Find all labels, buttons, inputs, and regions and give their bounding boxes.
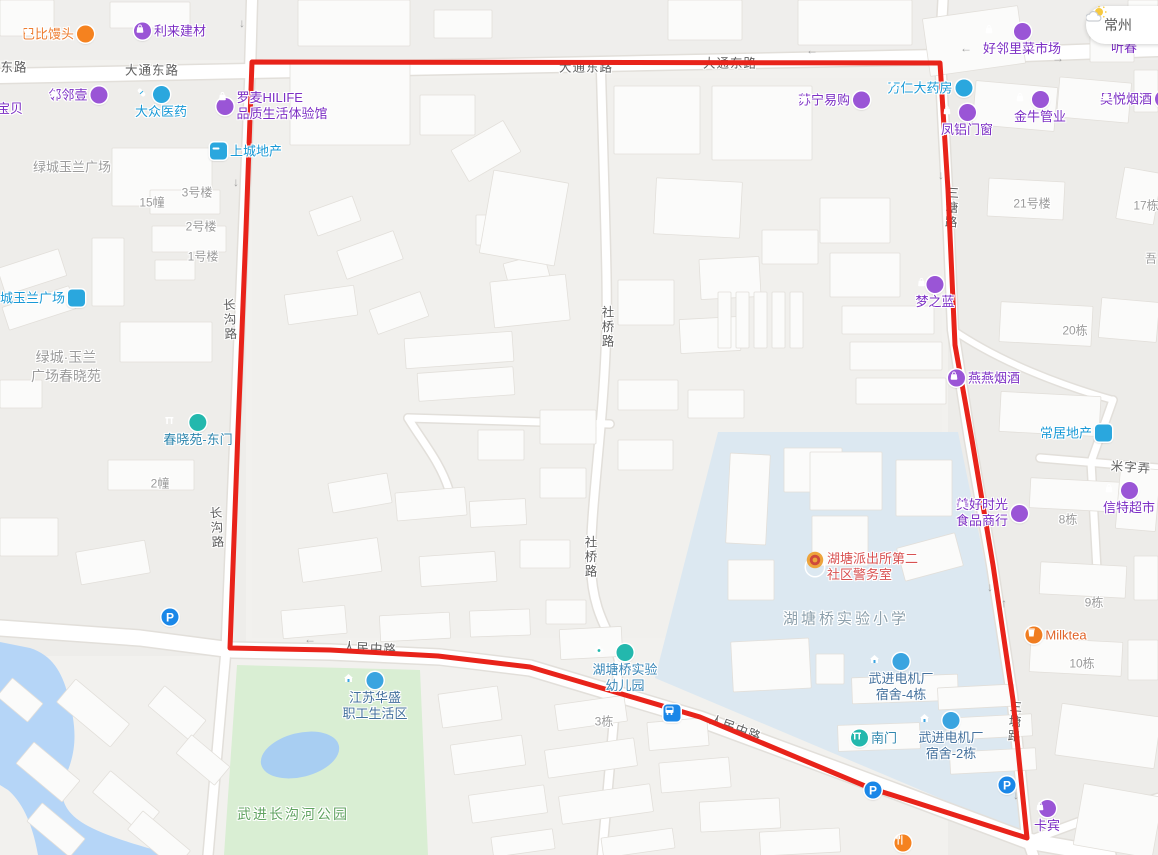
cup-icon xyxy=(1025,627,1042,644)
poi-label: 凤铝门窗 xyxy=(941,122,993,138)
bag-icon xyxy=(926,276,943,293)
poi-label-line: 宝贝 xyxy=(0,101,23,117)
bag-icon xyxy=(134,23,151,40)
map-canvas[interactable]: ↓↓←←→↓↓↑↓← 东路大通东路大通东路大通东路人民中路人民中路米字弄社桥路社… xyxy=(0,0,1158,855)
poi-label-line: 燕燕烟酒 xyxy=(968,370,1020,386)
house-icon xyxy=(366,672,383,689)
poi-label-line: 湖塘桥实验 xyxy=(592,662,657,678)
poi-label-line: 绿城玉兰广场 xyxy=(0,290,65,306)
poi-label-line: 上城地产 xyxy=(230,143,282,159)
poi-label-line: 湖塘派出所第二 xyxy=(827,551,918,567)
gate-icon xyxy=(851,730,868,747)
poi-shangcheng-estate[interactable]: 上城地产 xyxy=(210,143,282,160)
P-icon: P xyxy=(865,782,882,799)
poi-label-line: 幼儿园 xyxy=(592,678,657,694)
poi-label-line: 宿舍-4栋 xyxy=(868,687,933,703)
house-icon xyxy=(942,712,959,729)
house-icon xyxy=(892,653,909,670)
poi-label: 湖塘桥实验幼儿园 xyxy=(592,662,657,694)
poi-dazhong-pharmacy[interactable]: 大众医药 xyxy=(135,86,187,120)
bag-icon xyxy=(1011,505,1028,522)
poi-jiangsu-huasheng[interactable]: 江苏华盛职工生活区 xyxy=(342,672,407,722)
poi-label-line: 江苏华盛 xyxy=(342,690,407,706)
dash-icon xyxy=(1095,425,1112,442)
poi-experimental-kindergarten[interactable]: 湖塘桥实验幼儿园 xyxy=(592,644,657,694)
capsule-icon xyxy=(956,80,973,97)
bag-icon xyxy=(958,104,975,121)
poi-label-line: 职工生活区 xyxy=(342,706,407,722)
bag-icon xyxy=(1038,800,1055,817)
poi-label-line: 卡宾 xyxy=(1034,818,1060,834)
poi-label: 宝贝 xyxy=(0,101,23,117)
bag-icon xyxy=(1120,482,1137,499)
poi-yanyan-tobacco[interactable]: 燕燕烟酒 xyxy=(948,370,1020,387)
poi-wanren-pharmacy[interactable]: 万仁大药房 xyxy=(887,80,972,97)
badge-icon xyxy=(806,558,824,576)
poi-label-line: 武进电机厂 xyxy=(868,671,933,687)
flower-icon xyxy=(616,644,633,661)
poi-label: 绿城玉兰广场 xyxy=(0,290,65,306)
poi-label-line: 宿舍-2栋 xyxy=(918,746,983,762)
capsule-icon xyxy=(152,86,169,103)
bag-icon xyxy=(216,98,233,115)
poi-fenglv-windows[interactable]: 凤铝门窗 xyxy=(941,104,993,138)
poi-haolinli-market[interactable]: 好邻里菜市场 xyxy=(983,23,1061,57)
poi-label-line: 信特超市 xyxy=(1103,500,1155,516)
gate-icon xyxy=(190,414,207,431)
poi-label: 上城地产 xyxy=(230,143,282,159)
poi-changju-estate[interactable]: 常居地产 xyxy=(1040,425,1112,442)
bus-icon xyxy=(664,705,681,722)
poi-label-line: 品质生活体验馆 xyxy=(236,106,327,122)
poi-label-line: 金牛管业 xyxy=(1014,109,1066,125)
poi-chunxiao-east-gate[interactable]: 春晓苑-东门 xyxy=(163,414,232,448)
dash-icon xyxy=(210,143,227,160)
poi-lilai-jiancai[interactable]: 利来建材 xyxy=(134,23,206,40)
poi-label: 江苏华盛职工生活区 xyxy=(342,690,407,722)
fork-icon xyxy=(895,835,912,852)
poi-mengzhilan[interactable]: 梦之蓝 xyxy=(915,276,954,310)
poi-label-line: 南门 xyxy=(871,730,897,746)
weather-city: 常州 xyxy=(1104,15,1132,35)
poi-xinte-supermarket[interactable]: 信特超市 xyxy=(1103,482,1155,516)
poi-label-line: 凤铝门窗 xyxy=(941,122,993,138)
poi-baobei[interactable]: 宝贝 xyxy=(0,101,23,117)
poi-label-line: 社区警务室 xyxy=(827,567,918,583)
poi-label-line: 罗麦HILIFE xyxy=(236,90,327,106)
poi-layer: 巴比馒头利来建材邻邻壹宝贝大众医药罗麦HILIFE品质生活体验馆上城地产绿城玉兰… xyxy=(0,0,1158,855)
poi-label-line: 武进电机厂 xyxy=(918,730,983,746)
poi-bus-stop[interactable] xyxy=(664,705,681,722)
poi-suning-store[interactable]: 苏宁易购 xyxy=(798,92,870,109)
poi-label: 金牛管业 xyxy=(1014,109,1066,125)
poi-linlinyi[interactable]: 邻邻壹 xyxy=(48,87,107,104)
poi-label: 卡宾 xyxy=(1034,818,1060,834)
poi-label: 湖塘派出所第二社区警务室 xyxy=(827,551,918,583)
poi-label-line: Milktea xyxy=(1045,627,1086,643)
poi-parking-west[interactable]: P xyxy=(162,609,179,626)
poi-label-line: 食品商行 xyxy=(956,513,1008,529)
P-icon: P xyxy=(999,777,1016,794)
poi-label: 利来建材 xyxy=(154,23,206,39)
bag-icon xyxy=(853,92,870,109)
poi-label: 信特超市 xyxy=(1103,500,1155,516)
hand-icon xyxy=(77,26,94,43)
poi-motor-dorm-2[interactable]: 武进电机厂宿舍-2栋 xyxy=(918,712,983,762)
poi-lvcheng-yulan-plaza[interactable]: 绿城玉兰广场 xyxy=(0,290,85,307)
poi-label: 梦之蓝 xyxy=(915,294,954,310)
poi-label: 罗麦HILIFE品质生活体验馆 xyxy=(236,90,327,122)
poi-label: 好邻里菜市场 xyxy=(983,41,1061,57)
poi-milktea-shop[interactable]: Milktea xyxy=(1025,627,1086,644)
poi-label: 春晓苑-东门 xyxy=(163,432,232,448)
weather-widget[interactable]: 常州 xyxy=(1086,6,1158,44)
poi-jinniu-pipes[interactable]: 金牛管业 xyxy=(1014,91,1066,125)
poi-wuyue-tobacco[interactable]: 吴悦烟酒 xyxy=(1100,91,1158,108)
bag-icon xyxy=(1013,23,1030,40)
poi-label: 武进电机厂宿舍-4栋 xyxy=(868,671,933,703)
poi-label-line: 好邻里菜市场 xyxy=(983,41,1061,57)
bag-icon xyxy=(948,370,965,387)
poi-police-station-room[interactable]: 湖塘派出所第二社区警务室 xyxy=(806,551,918,583)
poi-label: 燕燕烟酒 xyxy=(968,370,1020,386)
poi-south-gate[interactable]: 南门 xyxy=(851,730,897,747)
poi-label: 大众医药 xyxy=(135,104,187,120)
dash-icon xyxy=(68,290,85,307)
poi-luomai-hilife[interactable]: 罗麦HILIFE品质生活体验馆 xyxy=(216,90,327,122)
poi-meihao-shiguang[interactable]: 美好时光食品商行 xyxy=(956,497,1028,529)
P-icon: P xyxy=(162,609,179,626)
bag-icon xyxy=(91,87,108,104)
poi-motor-dorm-4[interactable]: 武进电机厂宿舍-4栋 xyxy=(868,653,933,703)
poi-restaurant-poi[interactable] xyxy=(895,835,912,852)
poi-label-line: 春晓苑-东门 xyxy=(163,432,232,448)
poi-label-line: 利来建材 xyxy=(154,23,206,39)
poi-label-line: 梦之蓝 xyxy=(915,294,954,310)
poi-kabin[interactable]: 卡宾 xyxy=(1034,800,1060,834)
poi-label: Milktea xyxy=(1045,627,1086,643)
poi-label: 南门 xyxy=(871,730,897,746)
poi-label: 武进电机厂宿舍-2栋 xyxy=(918,730,983,762)
bag-icon xyxy=(1031,91,1048,108)
poi-label-line: 大众医药 xyxy=(135,104,187,120)
poi-parking-east[interactable]: P xyxy=(999,777,1016,794)
poi-parking-south[interactable]: P xyxy=(865,782,882,799)
poi-babi-mantou[interactable]: 巴比馒头 xyxy=(22,26,94,43)
